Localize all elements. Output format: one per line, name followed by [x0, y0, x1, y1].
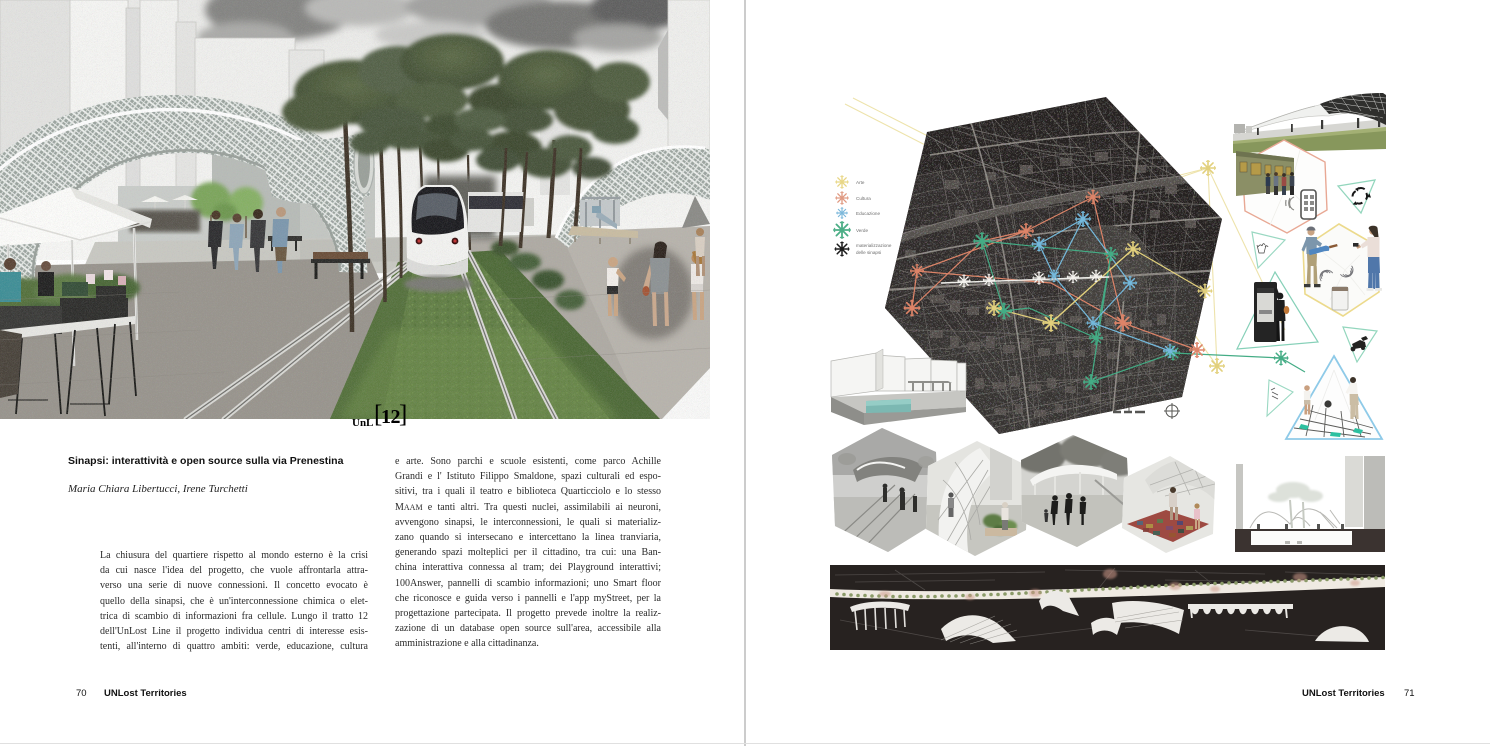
- svg-text:Cultura: Cultura: [856, 196, 871, 201]
- svg-text:Educazione: Educazione: [856, 211, 880, 216]
- svg-text:materializzazione: materializzazione: [856, 243, 892, 248]
- svg-text:delle sinapsi: delle sinapsi: [856, 250, 881, 255]
- svg-text:Verde: Verde: [856, 228, 868, 233]
- svg-text:Arte: Arte: [856, 180, 865, 185]
